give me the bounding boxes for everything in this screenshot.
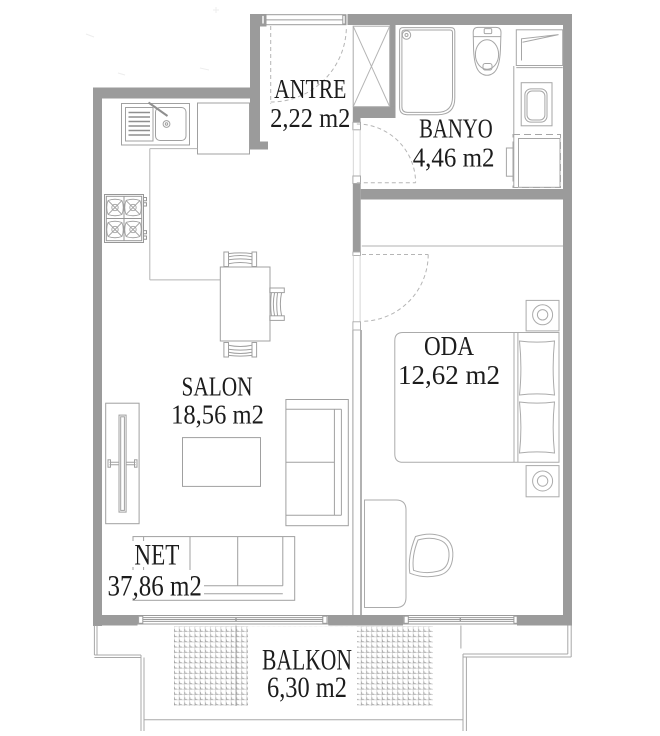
- svg-text:6,30 m2: 6,30 m2: [267, 671, 347, 704]
- svg-text:4,46 m2: 4,46 m2: [413, 142, 495, 172]
- svg-text:NET: NET: [134, 539, 179, 572]
- svg-text:37,86 m2: 37,86 m2: [108, 570, 202, 603]
- svg-text:2,22 m2: 2,22 m2: [270, 103, 350, 133]
- svg-text:BANYO: BANYO: [419, 113, 493, 143]
- svg-text:ANTRE: ANTRE: [274, 74, 346, 104]
- svg-text:12,62 m2: 12,62 m2: [398, 360, 500, 390]
- svg-text:ODA: ODA: [424, 331, 474, 361]
- svg-text:SALON: SALON: [182, 371, 253, 401]
- svg-text:18,56 m2: 18,56 m2: [171, 400, 264, 430]
